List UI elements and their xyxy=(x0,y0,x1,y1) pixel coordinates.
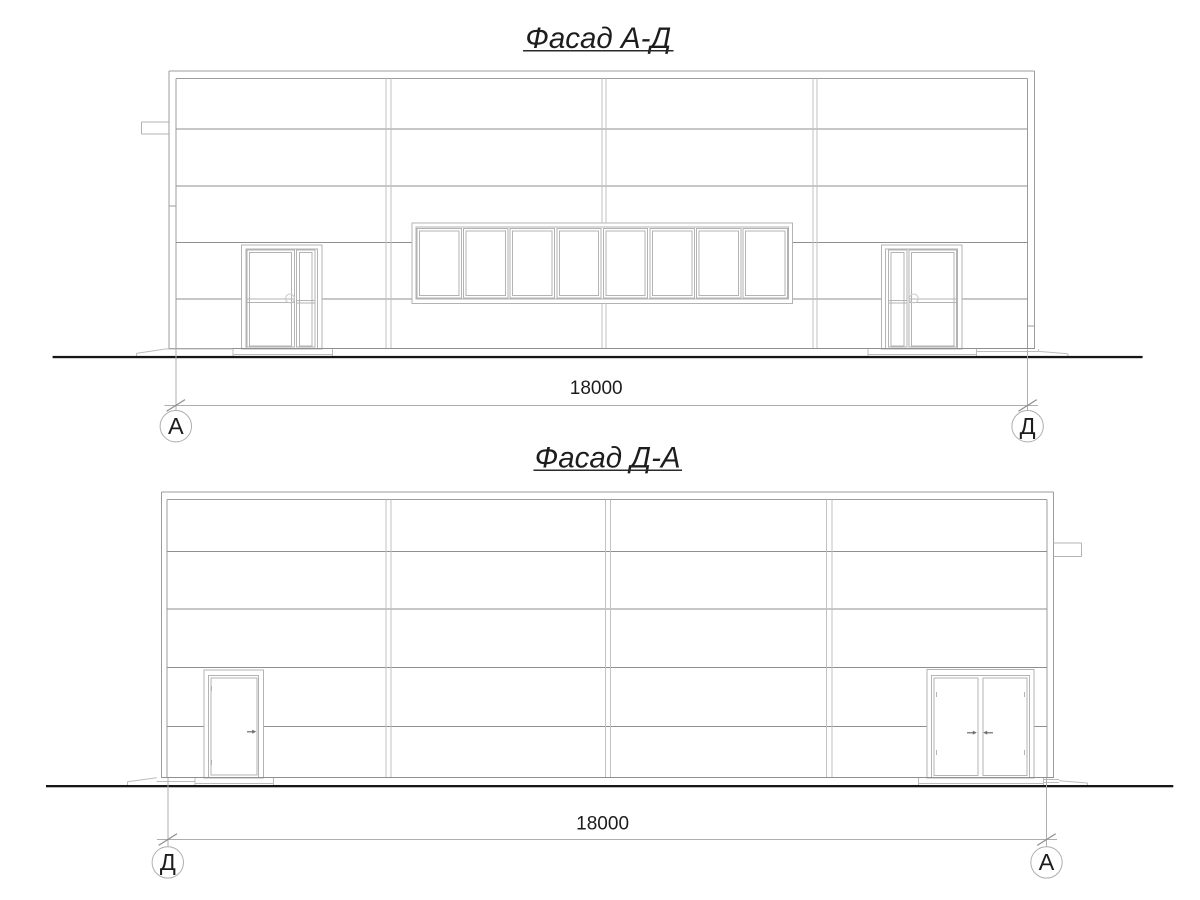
svg-text:А: А xyxy=(168,413,184,439)
svg-text:18000: 18000 xyxy=(576,813,629,834)
svg-text:Д: Д xyxy=(160,849,176,875)
svg-text:18000: 18000 xyxy=(570,378,623,399)
svg-text:Д: Д xyxy=(1020,413,1036,439)
svg-text:А: А xyxy=(1039,849,1055,875)
